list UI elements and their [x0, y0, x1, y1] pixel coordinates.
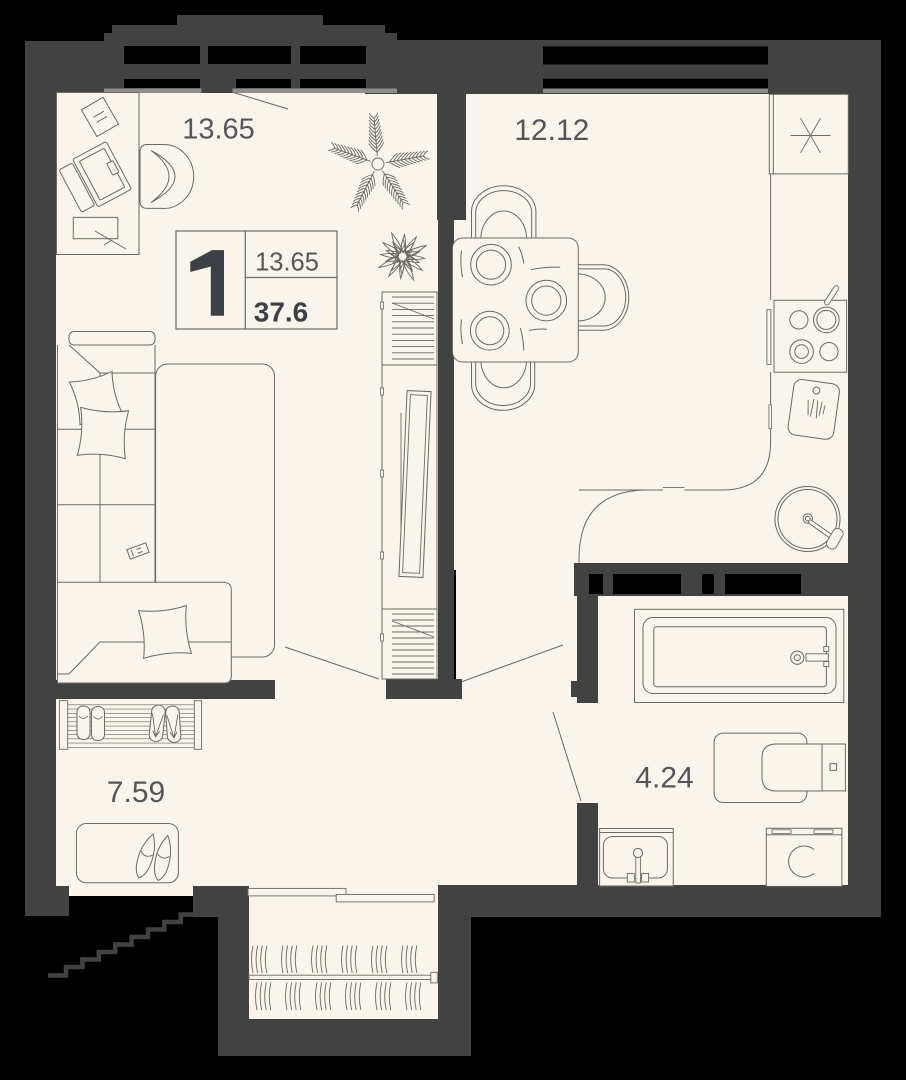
svg-text:13.65: 13.65: [182, 114, 255, 146]
svg-text:37.6: 37.6: [254, 297, 309, 328]
svg-text:13.65: 13.65: [255, 249, 319, 277]
svg-text:12.12: 12.12: [514, 114, 589, 147]
svg-text:7.59: 7.59: [107, 776, 165, 809]
svg-text:4.24: 4.24: [635, 762, 693, 795]
